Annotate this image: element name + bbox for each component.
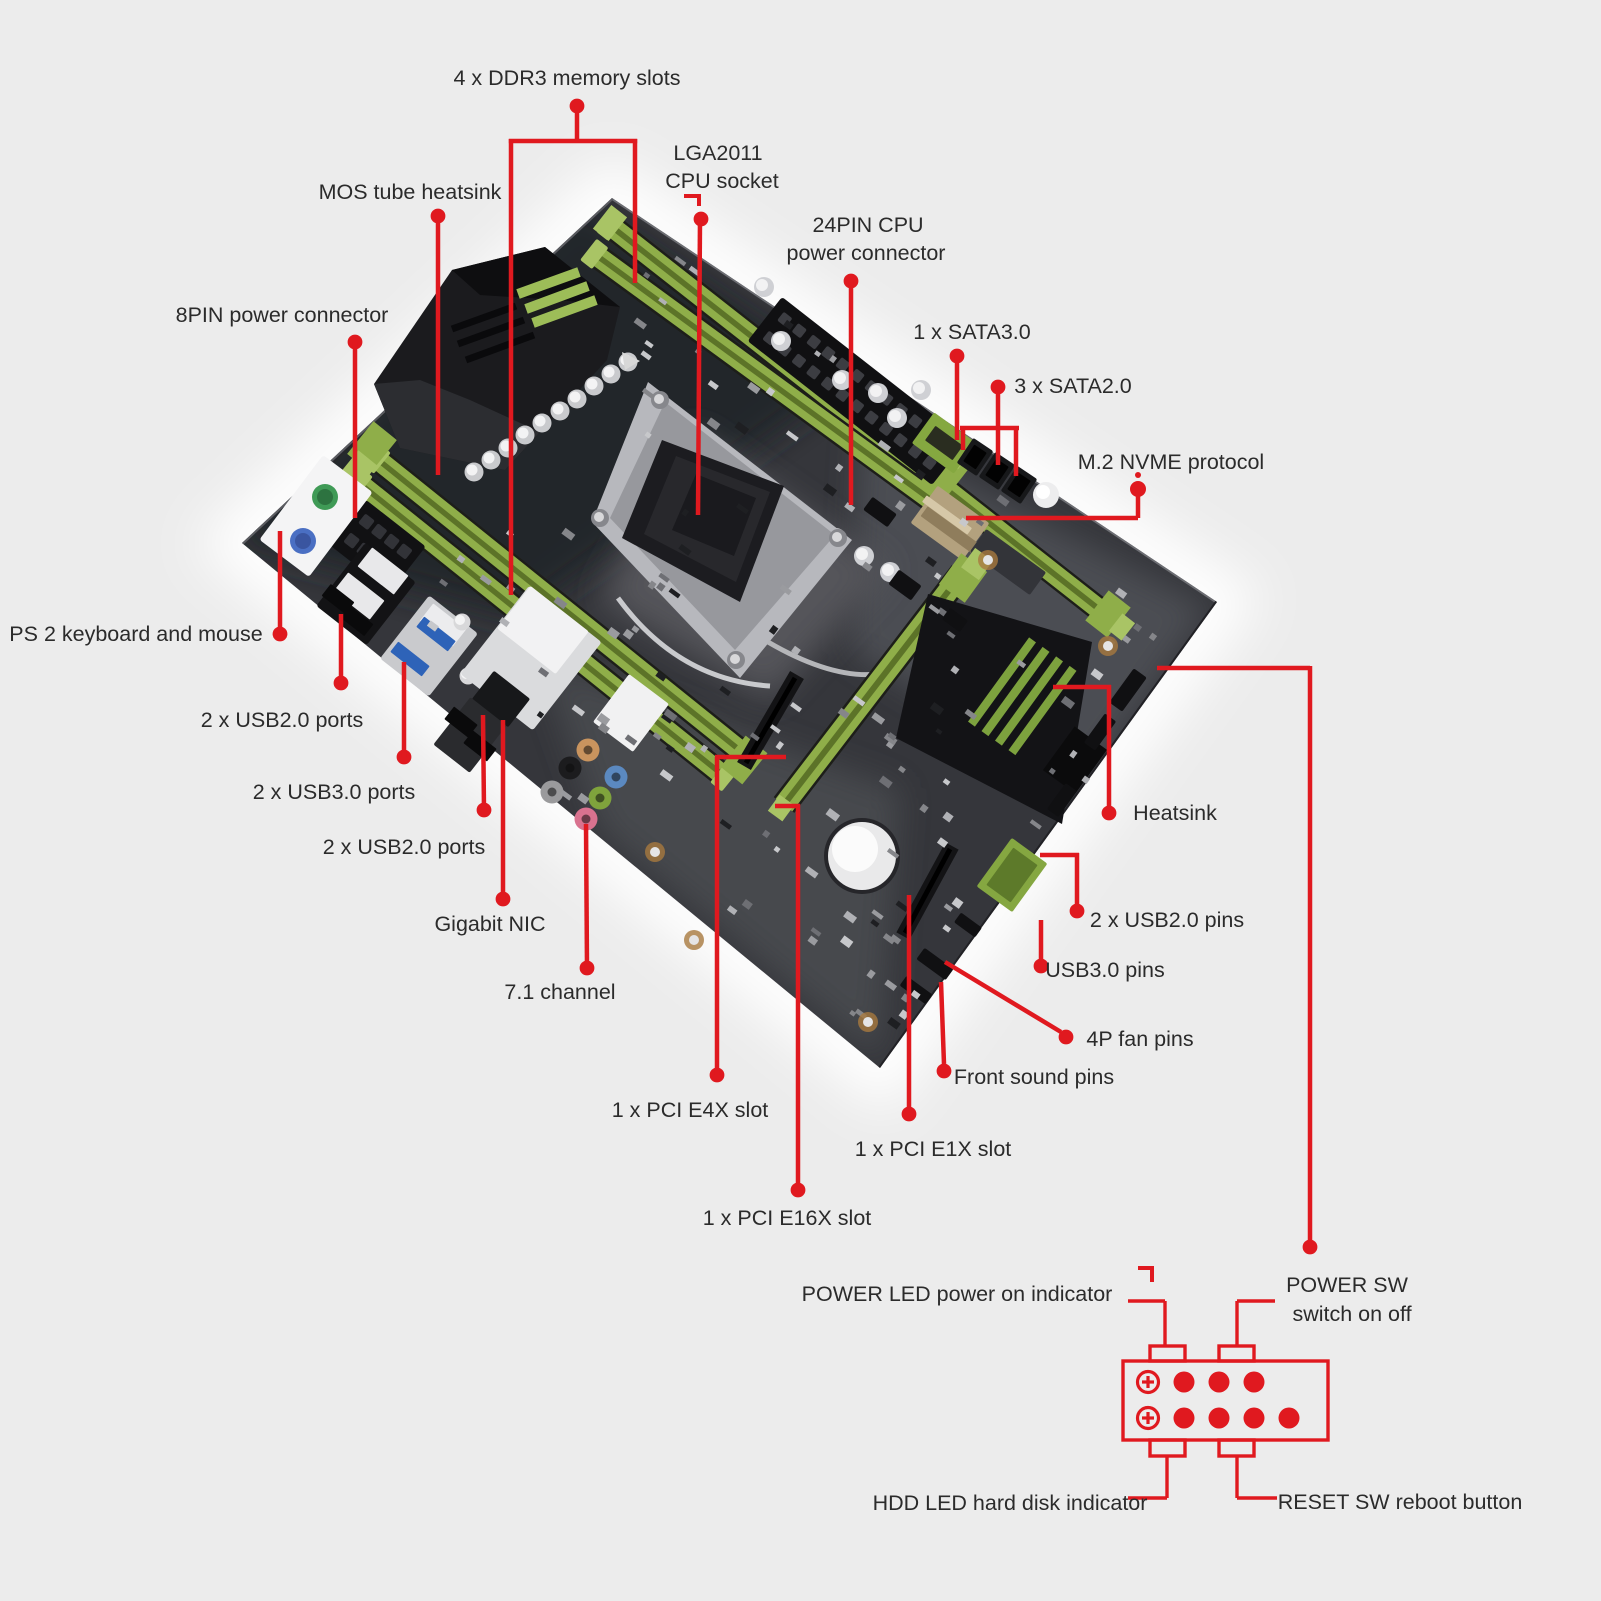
svg-text:POWER LED power on indicator: POWER LED power on indicator — [802, 1282, 1113, 1306]
svg-text:Gigabit NIC: Gigabit NIC — [434, 912, 545, 936]
svg-text:4 x DDR3 memory slots: 4 x DDR3 memory slots — [454, 66, 681, 90]
svg-text:2 x USB2.0 ports: 2 x USB2.0 ports — [201, 708, 364, 732]
svg-text:MOS tube heatsink: MOS tube heatsink — [319, 180, 502, 204]
svg-text:Heatsink: Heatsink — [1133, 801, 1217, 825]
svg-text:1 x PCI E16X slot: 1 x PCI E16X slot — [703, 1206, 872, 1230]
svg-text:2 x USB3.0 ports: 2 x USB3.0 ports — [253, 780, 416, 804]
svg-text:Front sound pins: Front sound pins — [954, 1065, 1114, 1089]
svg-text:8PIN power connector: 8PIN power connector — [176, 303, 389, 327]
svg-text:power connector: power connector — [787, 241, 946, 265]
svg-text:switch on off: switch on off — [1292, 1302, 1411, 1326]
svg-text:1 x PCI E1X slot: 1 x PCI E1X slot — [855, 1137, 1012, 1161]
svg-text:M.2 NVME protocol: M.2 NVME protocol — [1078, 450, 1264, 474]
svg-text:2 x USB2.0 pins: 2 x USB2.0 pins — [1090, 908, 1244, 932]
svg-text:USB3.0 pins: USB3.0 pins — [1045, 958, 1165, 982]
svg-text:7.1 channel: 7.1 channel — [504, 980, 615, 1004]
svg-text:4P fan pins: 4P fan pins — [1086, 1027, 1193, 1051]
svg-text:1 x SATA3.0: 1 x SATA3.0 — [913, 320, 1031, 344]
svg-text:LGA2011: LGA2011 — [673, 141, 762, 165]
svg-text:2 x USB2.0 ports: 2 x USB2.0 ports — [323, 835, 486, 859]
svg-text:CPU socket: CPU socket — [665, 169, 779, 193]
svg-text:24PIN CPU: 24PIN CPU — [812, 213, 923, 237]
svg-text:3 x SATA2.0: 3 x SATA2.0 — [1014, 374, 1132, 398]
svg-text:RESET SW reboot button: RESET SW reboot button — [1278, 1490, 1523, 1514]
svg-text:1 x PCI E4X slot: 1 x PCI E4X slot — [612, 1098, 769, 1122]
svg-text:POWER SW: POWER SW — [1286, 1273, 1409, 1297]
svg-text:HDD LED hard disk indicator: HDD LED hard disk indicator — [873, 1491, 1148, 1515]
svg-text:PS 2 keyboard and mouse: PS 2 keyboard and mouse — [9, 622, 262, 646]
